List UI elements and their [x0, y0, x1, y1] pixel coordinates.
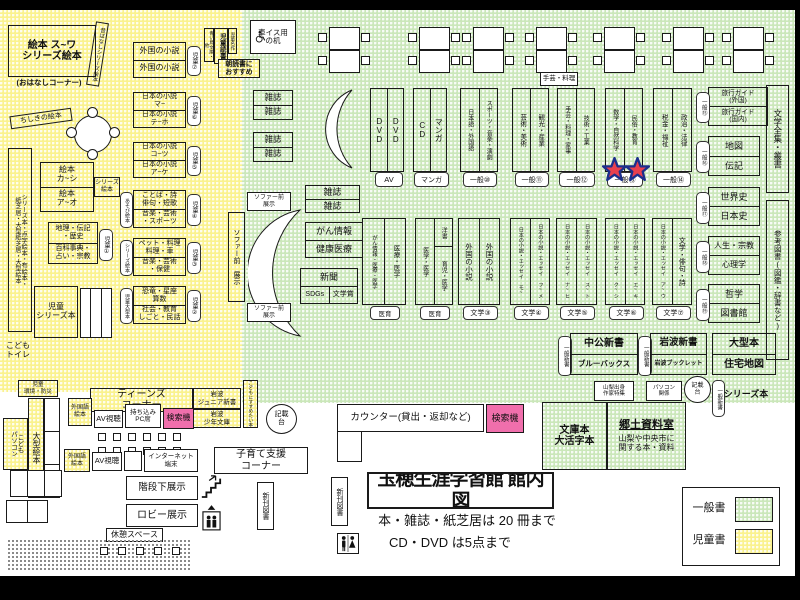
label-general-10: 一般⑩ [463, 172, 497, 187]
av-viewing-box: AV視聴 [92, 452, 122, 471]
shelf-foreign-novels: 外国の小説外国の小説 [458, 218, 500, 305]
label-iiku: 医育 [370, 306, 400, 320]
kids-tab-5: 児童⑤ [187, 146, 201, 176]
pc-related-box: パソコン 関係 [646, 381, 682, 401]
wheelchair-desk: 車イス用 の机 [250, 20, 296, 54]
seat [173, 433, 181, 441]
kids-pc-box: こども パソコン [3, 418, 28, 470]
elevator-icon [202, 505, 221, 531]
counter: カウンター(貸出・返却など) [337, 404, 484, 432]
shelf-dvd: DVDDVD [370, 88, 404, 172]
label-iiku: 医育 [420, 306, 450, 320]
tab-general-17: 一般⑰ [696, 192, 710, 224]
kids-chair [109, 127, 120, 138]
iwanami-shinsho-shelf: 岩波新書 岩波ブックレット [650, 333, 707, 375]
bench [10, 470, 62, 497]
shelf-art-tourism: 芸術・美術観光・産業 [512, 88, 549, 172]
legend-general-label: 一般書 [688, 500, 730, 516]
lobby-display: ロビー展示 [126, 504, 198, 527]
picture-book-corner: 絵本 ス~ワ シリーズ絵本 [8, 25, 96, 77]
ehon-shelf: 絵本 カ~シ絵本 ア~オ [40, 162, 94, 212]
play-books-tab: あそび絵本 [120, 192, 133, 228]
reading-table [408, 27, 460, 73]
childcare-support-corner: 子育て支援 コーナー [214, 447, 308, 474]
shelf-jp-essay-mo: 日本の小説・エッセイ モ~日本の小説・エッセイ フ~メ [510, 218, 550, 305]
tab-general-16: 一般⑯ [696, 141, 710, 173]
label-bungaku-5: 文学⑤ [560, 306, 595, 320]
travel-guide-shelf: 旅行ガイド (外国)旅行ガイド (国内) [708, 87, 768, 126]
library-floor-map: { "title": { "main": "玉穂生涯学習館 館内図", "rul… [0, 0, 800, 600]
kids-shelf-language-poetry: ことば・詩 俳句・短歌音楽・芸術 ・スポーツ [133, 190, 186, 228]
history-shelf: 世界史日本史 [708, 187, 760, 226]
reading-table [722, 27, 774, 73]
recommended-kids-strip: こどもにすすめたい本 [243, 380, 258, 428]
morning-reading-box: 朝読書に おすすめ [218, 59, 260, 78]
legend-general-swatch [735, 497, 773, 522]
literary-prize-cell: 文学賞 [329, 287, 358, 304]
kamishibai-strip: シリーズ本・点字絵本・布絵本・ 紙芝居・大型紙芝居・大型絵本 [8, 148, 32, 332]
kids-shelf-pets-cooking: ペット・料理 料理・車音楽・芸術 ・保健 [133, 238, 186, 276]
label-bungaku-3: 文学③ [463, 306, 498, 320]
label-bungaku-4: 文学④ [514, 306, 549, 320]
label-general-12: 一般⑫ [559, 172, 595, 187]
label-general-11: 一般⑪ [515, 172, 549, 187]
shelf-jp-essay-ku: 日本の小説・エッセイ ク~シ日本の小説・エッセイ エ~キ [605, 218, 645, 305]
seat [172, 547, 180, 555]
bluebird-bunko-shelf: 青い鳥文庫・他 [204, 28, 214, 62]
reading-table [662, 27, 714, 73]
seat [128, 433, 136, 441]
kids-chair [87, 107, 98, 118]
sofa-front-display-box: ソファー前 展示 [247, 303, 291, 322]
shelf-slats [80, 288, 112, 338]
legend-children-swatch [735, 529, 773, 554]
large-books-shelf: 大型本住宅地図 [712, 333, 776, 375]
map-title: 玉穂生涯学習館 館内図 [367, 472, 554, 509]
stairs-icon [200, 473, 222, 499]
new-books-shelf: 新刊図書 [257, 482, 274, 530]
shelf-craft-tech: 手芸・料理・家事技術・工業 [557, 88, 595, 172]
kids-tab-3: 児童③ [187, 242, 201, 274]
childcare-medicine-cell: 育児・医学 [435, 247, 453, 304]
chuko-shinsho-shelf: 中公新書 ブルーバックス [570, 333, 638, 375]
reading-table [525, 27, 577, 73]
sdgs-cell: SDGs [301, 287, 329, 304]
magazine-shelf: 雑誌雑誌 [253, 90, 293, 120]
seat [136, 547, 144, 555]
magazine-shelf: 雑誌雑誌 [253, 132, 293, 162]
seat [100, 547, 108, 555]
legend-children-label: 児童書 [688, 532, 730, 548]
religion-psychology-shelf: 人生・宗教心理学 [708, 236, 760, 275]
magazine-shelf: 雑誌雑誌 [305, 185, 360, 213]
search-terminal: 検索機 [163, 408, 194, 429]
kids-shelf-foreign-novels: 外国の小説外国の小説 [133, 42, 186, 78]
search-terminal: 検索機 [486, 404, 524, 433]
series-ehon-box: シリーズ 絵本 [94, 177, 120, 197]
seat [113, 433, 121, 441]
geo-biography-shelf: 地理・伝記 ・歴史百科事典・ 占い・宗教 [48, 222, 98, 264]
label-av: AV [375, 172, 403, 187]
av-viewing-box: AV視聴 [94, 410, 123, 428]
tab-general-19: 一般⑲ [696, 289, 710, 321]
kids-tab-1: 児童① [99, 229, 113, 261]
label-manga: マンガ [414, 172, 449, 187]
kids-shelf-jp-novels-ko: 日本の小説 コ~ツ日本の小説 ア~ケ [133, 142, 186, 178]
local-room-title: 郷土資料室 [619, 419, 674, 431]
star-marker [625, 157, 650, 182]
shelf-cd-manga: CDマンガ [413, 88, 447, 172]
reading-table [593, 27, 645, 73]
byod-pc-seats: 持ち込み PC席 [125, 404, 161, 428]
foreign-ehon-box: 外国語 絵本 [68, 398, 92, 426]
series-ehon-tab: シリーズ絵本 [120, 240, 133, 276]
western-books-cell: 洋書 [435, 219, 453, 247]
local-materials-room: 郷土資料室 山梨や中央市に 関する本・資料 [607, 402, 686, 470]
kids-chair [66, 127, 77, 138]
series-books-label: シリーズ本 [723, 387, 769, 401]
shelf-language-sports: 日本語・外国語スポーツ・音楽・演劇 [460, 88, 498, 172]
shelf-medical-2: 医学・医学 洋書 育児・医学 [415, 218, 453, 305]
bunkobon-shelf: 文庫本 大活字本 [542, 402, 607, 470]
seat [118, 547, 126, 555]
seat [143, 433, 151, 441]
seat [158, 433, 166, 441]
shelf-jp-essay-a: 日本の小説・エッセイ ア~ウ文学・俳句・詩 [652, 218, 692, 305]
counter-wing [337, 431, 362, 462]
internet-terminal: インターネット 端末 [144, 449, 198, 472]
kids-tab-6: 児童⑥ [187, 96, 201, 126]
shelf-tax-politics: 税金・福祉政治・法律 [653, 88, 692, 172]
seat [98, 433, 106, 441]
kids-series-shelf: 児童 シリーズ本 [34, 286, 78, 338]
storytelling-corner-label: (おはなしコーナー) [2, 77, 96, 90]
foreign-ehon-box: 外国語 絵本 [64, 449, 90, 472]
local-room-desc: 山梨や中央市に 関する本・資料 [619, 435, 675, 453]
kids-chair [87, 149, 98, 160]
label-bungaku-6: 文学⑥ [609, 306, 644, 320]
kids-large-books-tab: 児童大型本 [120, 288, 133, 324]
star-marker [602, 157, 627, 182]
kids-round-table [74, 115, 112, 153]
label-general-14: 一般⑭ [656, 172, 691, 187]
new-books-shelf: 新刊図書 [331, 477, 348, 526]
reading-table [318, 27, 370, 73]
literature-anthology-shelf: 文学全集・叢書 [766, 85, 789, 193]
rest-space-area [8, 540, 192, 572]
kids-tab-4: 児童④ [187, 194, 201, 226]
writing-stand: 記載 台 [266, 404, 297, 434]
writing-stand: 記載 台 [684, 376, 711, 403]
kids-tab-2: 児童② [187, 290, 201, 322]
under-stairs-display: 階段下展示 [126, 476, 198, 500]
kids-toilet-label: こども トイレ [2, 338, 34, 364]
sofa-crescent [312, 88, 354, 170]
map-biography-shelf: 地図伝記 [708, 136, 760, 176]
cancer-info-shelf: がん情報健康医療 [305, 222, 363, 258]
philosophy-shelf: 哲学図書館 [708, 284, 760, 323]
yamanashi-authors-box: 山梨出身 作家特集 [594, 381, 634, 401]
lending-rule-books: 本・雑誌・紙芝居は 20 冊まで [367, 512, 567, 530]
tab-general-18: 一般⑱ [696, 241, 710, 273]
kids-shelf-jp-novels-ma: 日本の小説 マ~日本の小説 テ~ホ [133, 92, 186, 128]
kids-tab-7: 児童⑦ [187, 46, 201, 76]
newspaper-shelf: 新聞 SDGs 文学賞 [300, 268, 358, 304]
seat [154, 547, 162, 555]
lending-rule-av: CD・DVD は5点まで [350, 534, 550, 552]
sofa-front-display-tall: ソファー前 展示 [228, 212, 245, 302]
iwanami-shonen-box: 岩波 少年文庫 [193, 409, 241, 428]
kids-classics-shelf: 児童名作 [228, 28, 237, 54]
tab-general-15: 一般⑮ [696, 92, 710, 123]
label-bungaku-7: 文学⑦ [656, 306, 691, 320]
bench [6, 500, 48, 523]
craft-cooking-sign: 手芸・料理 [540, 72, 578, 86]
iwanami-junior-box: 岩波 ジュニア新書 [193, 388, 241, 409]
kids-env-disaster-box: 児童 環境・防災 [18, 380, 58, 397]
reading-table [462, 27, 514, 73]
shelf-jp-essay-na: 日本の小説・エッセイ ナ~ヒ日本の小説・エッセイ ス~ト [556, 218, 597, 305]
shelf-medical-1: がん情報・医療・医学医療・医学 [362, 218, 406, 305]
kids-shelf-dino-society: 恐竜・星座 算数社会・教育 しごと・民話 [133, 286, 186, 324]
blank-desk [124, 451, 142, 471]
wheelchair-icon [254, 21, 267, 51]
